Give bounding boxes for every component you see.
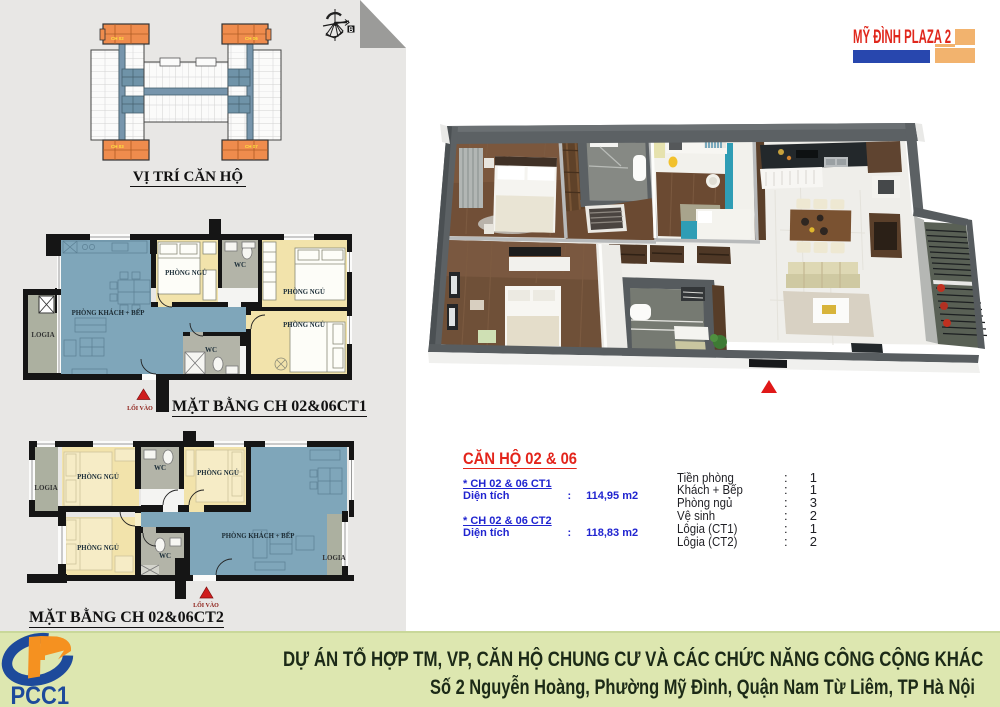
svg-text:CH 03: CH 03 xyxy=(111,144,124,149)
svg-text:WC: WC xyxy=(154,464,166,472)
svg-text:WC: WC xyxy=(159,552,171,560)
svg-text:PHÒNG NGỦ: PHÒNG NGỦ xyxy=(77,473,119,481)
svg-text:LOGIA: LOGIA xyxy=(322,554,345,562)
svg-text:PHÒNG NGỦ: PHÒNG NGỦ xyxy=(283,288,325,296)
svg-text:PHÒNG KHÁCH + BẾP: PHÒNG KHÁCH + BẾP xyxy=(222,532,295,540)
svg-text:PHÒNG NGỦ: PHÒNG NGỦ xyxy=(77,544,119,552)
svg-text:PHÒNG NGỦ: PHÒNG NGỦ xyxy=(283,321,325,329)
svg-text:CH 02: CH 02 xyxy=(111,36,124,41)
svg-text:LOGIA: LOGIA xyxy=(31,331,54,339)
svg-text:PHÒNG NGỦ: PHÒNG NGỦ xyxy=(197,469,239,477)
svg-text:CH 07: CH 07 xyxy=(245,144,258,149)
svg-text:PCC1: PCC1 xyxy=(11,682,70,707)
svg-text:WC: WC xyxy=(205,346,217,354)
svg-text:PHÒNG KHÁCH + BẾP: PHÒNG KHÁCH + BẾP xyxy=(72,309,145,317)
svg-text:LỐI VÀO: LỐI VÀO xyxy=(193,601,219,609)
svg-text:LỐI VÀO: LỐI VÀO xyxy=(127,404,153,412)
svg-text:LOGIA: LOGIA xyxy=(34,484,57,492)
svg-text:PHÒNG NGỦ: PHÒNG NGỦ xyxy=(165,269,207,277)
svg-text:CH 06: CH 06 xyxy=(245,36,258,41)
svg-text:WC: WC xyxy=(234,261,246,269)
